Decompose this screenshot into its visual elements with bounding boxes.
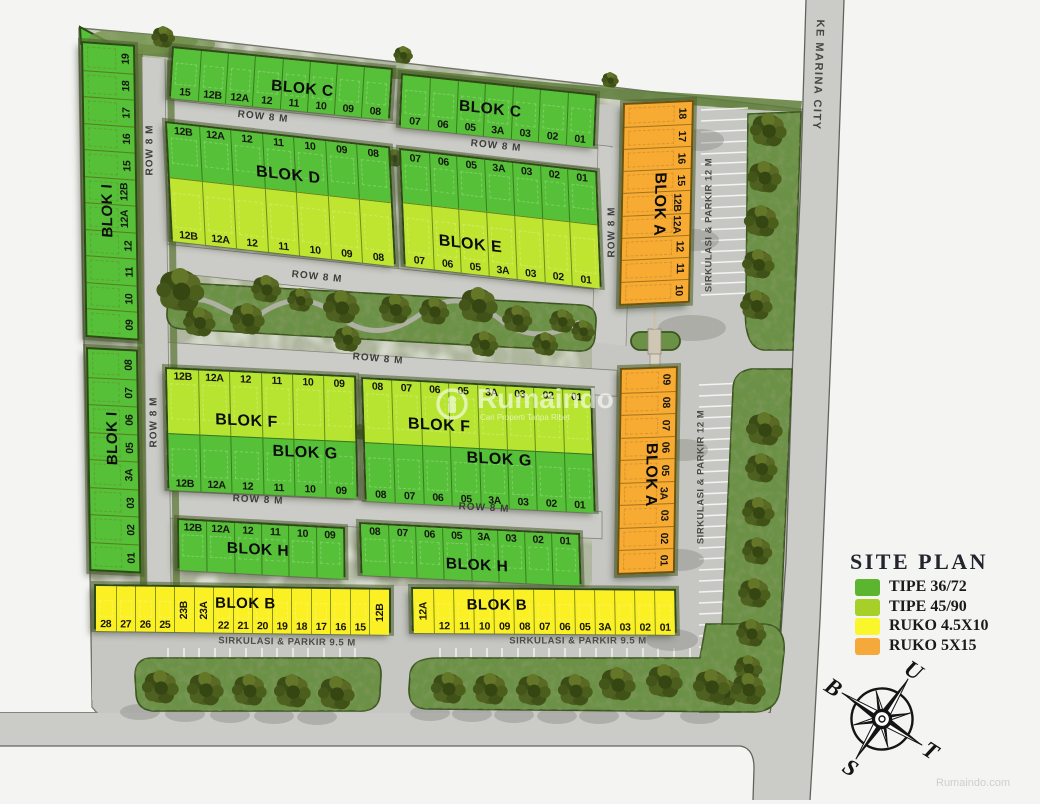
svg-text:B: B [819,672,846,702]
svg-text:U: U [900,655,929,686]
svg-text:T: T [918,736,944,765]
svg-text:S: S [838,754,862,782]
